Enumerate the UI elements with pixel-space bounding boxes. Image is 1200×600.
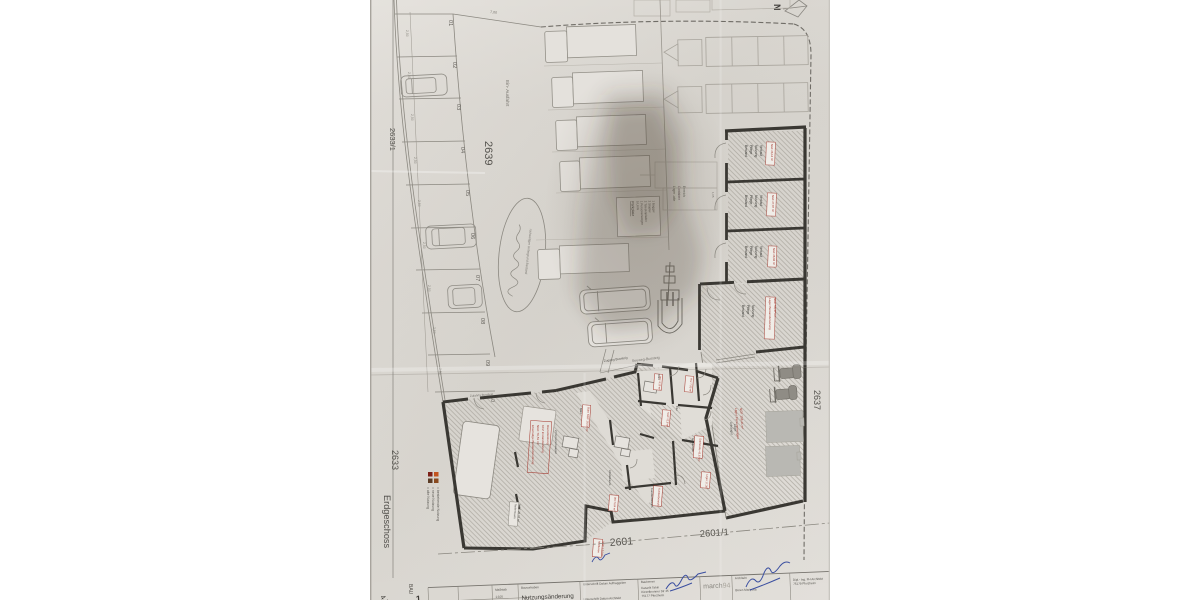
svg-text:04: 04 (459, 147, 465, 153)
svg-text:2,50: 2,50 (427, 285, 431, 292)
svg-text:09: 09 (484, 360, 490, 366)
svg-text:Bauvorhaben: Bauvorhaben (521, 585, 539, 590)
svg-text:BAU: BAU (407, 584, 413, 595)
svg-text:Bestand: Bestand (744, 195, 748, 207)
svg-text:Verkauf: Verkauf (759, 145, 763, 156)
svg-text:Verkauf: Verkauf (759, 195, 763, 206)
svg-text:2,50: 2,50 (432, 327, 436, 334)
svg-text:Büro: Büro (657, 374, 661, 380)
svg-text:2639: 2639 (482, 141, 494, 165)
svg-text:Lager Bestandsnutzung: Lager Bestandsnutzung (768, 298, 772, 330)
svg-text:march94: march94 (703, 582, 731, 590)
svg-text:= neue Nutzung: = neue Nutzung (431, 487, 435, 511)
svg-text:Flur: Flur (675, 406, 679, 411)
svg-text:Bestand: Bestand (741, 305, 745, 317)
svg-text:Architekt: Architekt (735, 576, 747, 580)
svg-text:Büro: Büro (579, 408, 583, 414)
svg-text:07: 07 (474, 275, 480, 281)
svg-text:Ein- Ausfahrt: Ein- Ausfahrt (505, 80, 510, 107)
svg-text:Abstellraum: Abstellraum (608, 470, 612, 486)
svg-text:= bestehende Nutzung: = bestehende Nutzung (436, 487, 440, 521)
svg-text:Unterschrift Datum Architekt: Unterschrift Datum Architekt (584, 596, 622, 600)
svg-text:NGF 26,16 m²: NGF 26,16 m² (770, 144, 774, 161)
svg-text:Pflege: Pflege (749, 246, 753, 256)
svg-text:Nutzung: Nutzung (754, 145, 758, 157)
svg-text:Nutzung: Nutzung (751, 305, 755, 317)
svg-text:NGF 27,87 m²: NGF 27,87 m² (771, 195, 775, 212)
svg-text:7,00: 7,00 (490, 10, 497, 15)
svg-text:Garderobe: Garderobe (691, 438, 695, 452)
svg-text:NGF 76,51 m²: NGF 76,51 m² (536, 425, 540, 445)
svg-text:Pflege: Pflege (749, 145, 753, 155)
svg-text:2,50: 2,50 (422, 242, 426, 249)
svg-text:Erdgeschoss: Erdgeschoss (382, 495, 392, 549)
svg-text:1:100: 1:100 (495, 595, 503, 599)
svg-text:Ehemalige Bestandsnutzung: Ehemalige Bestandsnutzung (531, 425, 535, 465)
svg-text:Bestand: Bestand (744, 246, 748, 258)
svg-text:Dienstleistung: Dienstleistung (546, 425, 550, 445)
svg-text:NGF 28,06 m²: NGF 28,06 m² (772, 248, 776, 265)
svg-text:2,50: 2,50 (413, 157, 417, 164)
svg-text:2633/1: 2633/1 (388, 128, 397, 151)
svg-text:02: 02 (451, 62, 457, 68)
svg-text:Verkauf: Verkauf (759, 246, 763, 257)
svg-text:N: N (772, 4, 782, 11)
svg-text:1: 1 (416, 594, 422, 600)
svg-text:2 Personenwagen: 2 Personenwagen (554, 430, 558, 455)
svg-text:2633: 2633 (390, 450, 400, 470)
svg-text:Bauherren: Bauherren (641, 579, 655, 584)
svg-text:2637: 2637 (812, 390, 822, 410)
svg-text:= alte Nutzung: = alte Nutzung (426, 487, 430, 509)
svg-text:Kundenbereich: Kundenbereich (650, 488, 654, 508)
svg-text:2,50: 2,50 (405, 30, 409, 37)
svg-text:08: 08 (479, 318, 485, 324)
svg-text:Lager: Lager (733, 424, 738, 432)
svg-text:Nutzung: Nutzung (754, 195, 758, 207)
svg-text:Pflege: Pflege (749, 195, 753, 205)
svg-text:2,50: 2,50 (417, 200, 421, 207)
svg-text:05: 05 (464, 190, 470, 196)
svg-text:Nutzung: Nutzung (754, 246, 758, 258)
svg-text:Nutzungsänderung: Nutzungsänderung (521, 593, 574, 600)
svg-text:2601: 2601 (609, 535, 633, 549)
svg-text:01: 01 (447, 20, 453, 26)
svg-text:03: 03 (455, 104, 461, 110)
svg-text:Maßstab: Maßstab (495, 587, 507, 591)
svg-text:Bestand: Bestand (744, 145, 748, 157)
svg-text:2,50: 2,50 (410, 114, 414, 121)
svg-text:Pflege: Pflege (746, 305, 750, 315)
svg-text:NGF 56,47 m²: NGF 56,47 m² (773, 298, 777, 317)
svg-text:06: 06 (469, 233, 475, 239)
svg-text:KFZ Instandsetzung: KFZ Instandsetzung (541, 425, 545, 453)
